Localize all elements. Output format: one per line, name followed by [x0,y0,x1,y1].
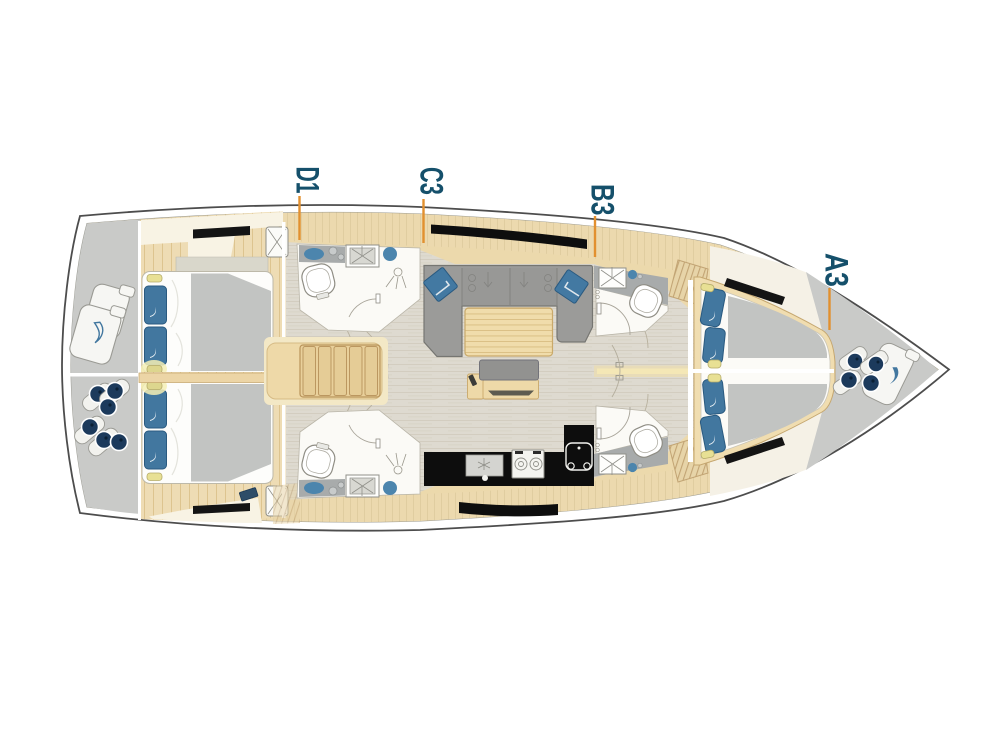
svg-text:D1: D1 [289,167,326,194]
svg-text:C3: C3 [413,167,449,195]
svg-text:B3: B3 [584,184,620,215]
svg-text:A3: A3 [818,253,854,287]
